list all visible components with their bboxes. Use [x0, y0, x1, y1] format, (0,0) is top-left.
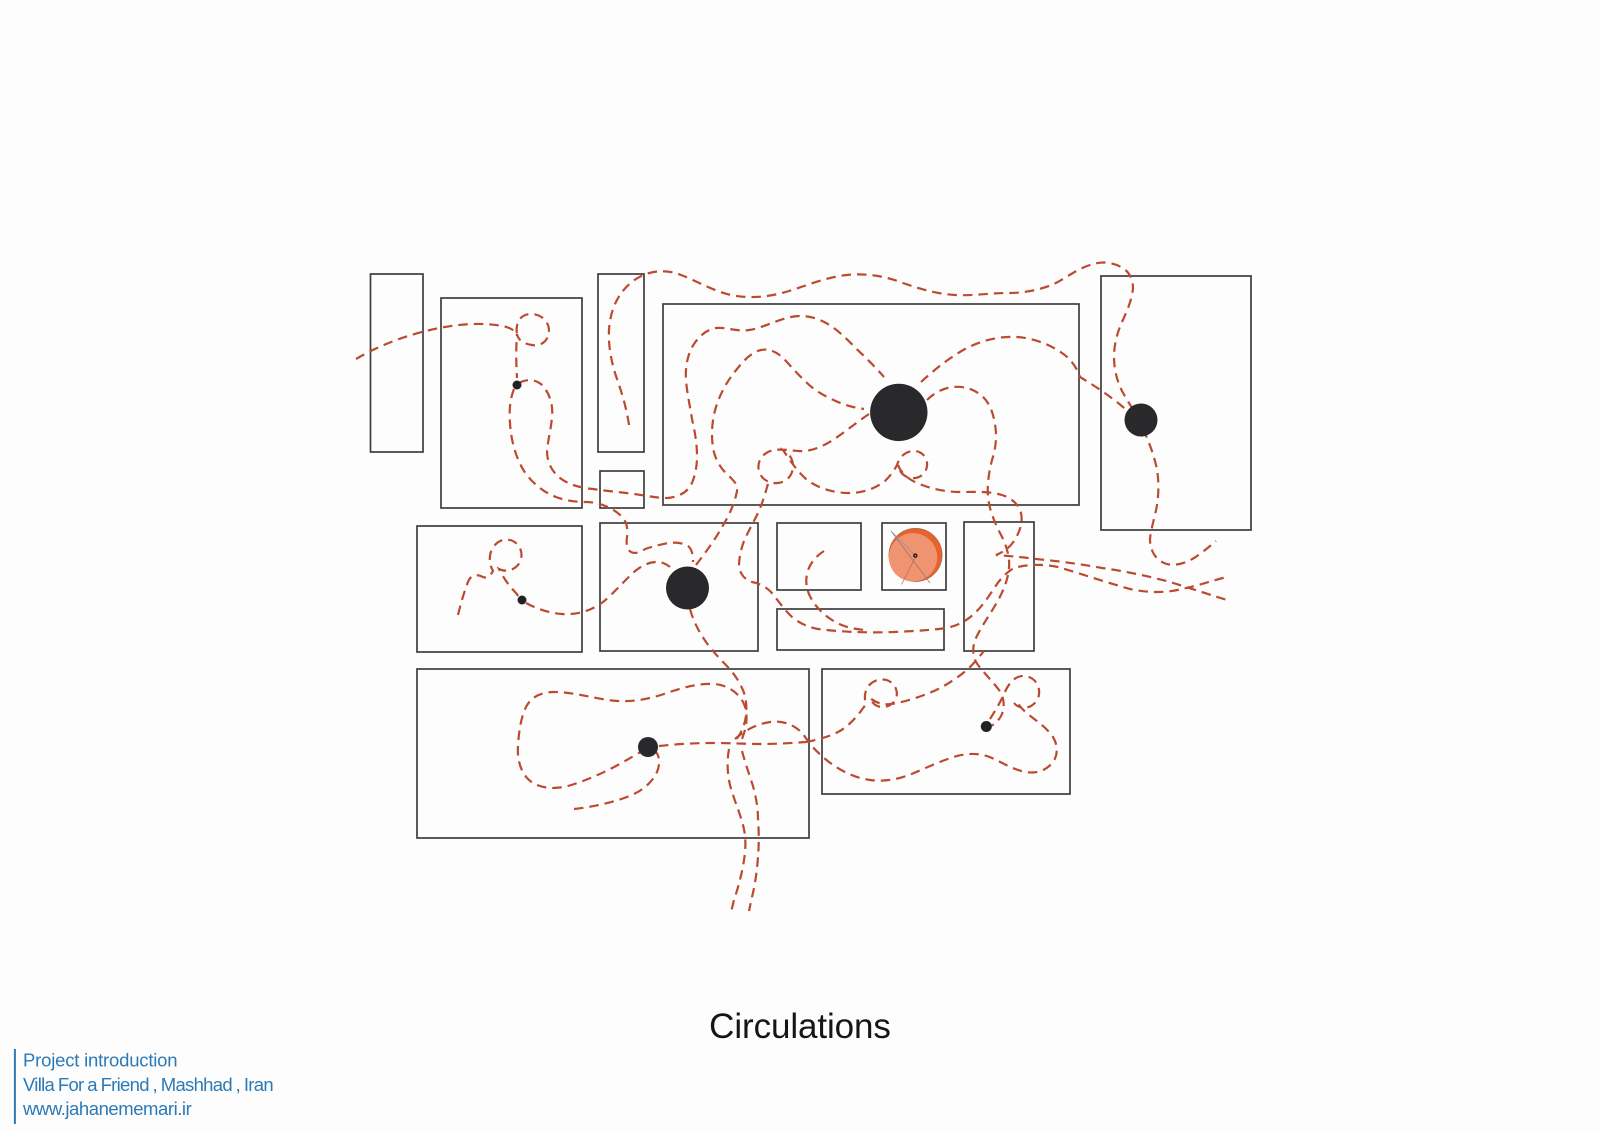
- svg-text:Project introduction: Project introduction: [23, 1050, 177, 1071]
- svg-text:www.jahanememari.ir: www.jahanememari.ir: [22, 1098, 192, 1119]
- svg-text:Villa For a Friend , Mashhad ,: Villa For a Friend , Mashhad , Iran: [23, 1074, 273, 1095]
- svg-text:Circulations: Circulations: [709, 1007, 891, 1046]
